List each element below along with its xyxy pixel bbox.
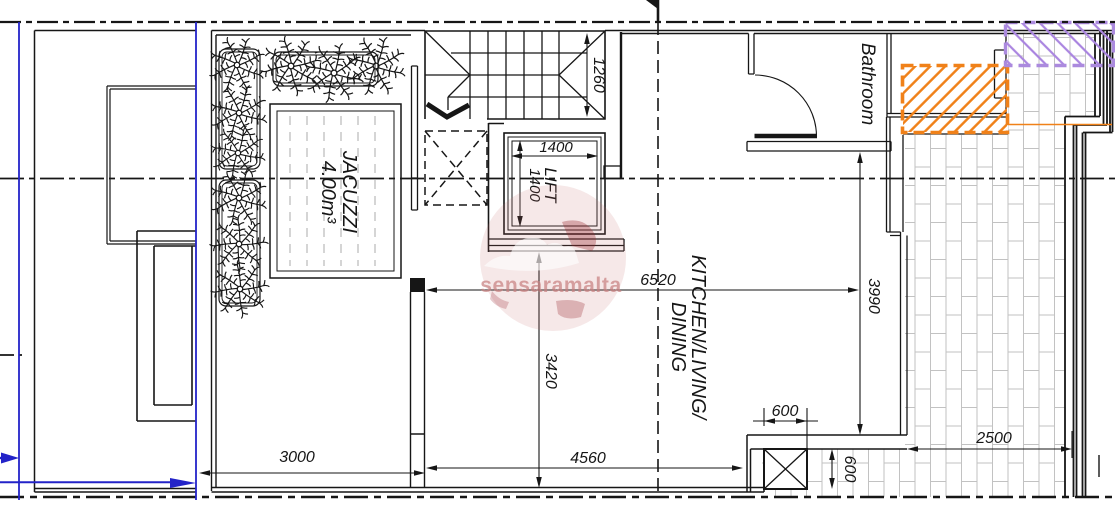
svg-text:600: 600 bbox=[772, 403, 799, 420]
svg-text:JACUZZI: JACUZZI bbox=[338, 150, 360, 234]
svg-text:3000: 3000 bbox=[279, 449, 315, 466]
svg-text:KITCHEN/LIVING/: KITCHEN/LIVING/ bbox=[687, 255, 709, 422]
svg-text:1400: 1400 bbox=[539, 139, 573, 156]
svg-text:4560: 4560 bbox=[570, 450, 606, 467]
svg-text:3420: 3420 bbox=[542, 353, 559, 389]
svg-text:DINING: DINING bbox=[667, 302, 689, 372]
svg-text:600: 600 bbox=[841, 456, 858, 483]
svg-text:Bathroom: Bathroom bbox=[857, 43, 878, 125]
svg-text:2500: 2500 bbox=[975, 430, 1012, 447]
svg-text:3990: 3990 bbox=[865, 278, 882, 314]
svg-text:1260: 1260 bbox=[590, 57, 607, 93]
svg-text:sensaramalta: sensaramalta bbox=[480, 274, 621, 297]
svg-text:4.00m³: 4.00m³ bbox=[317, 161, 339, 225]
